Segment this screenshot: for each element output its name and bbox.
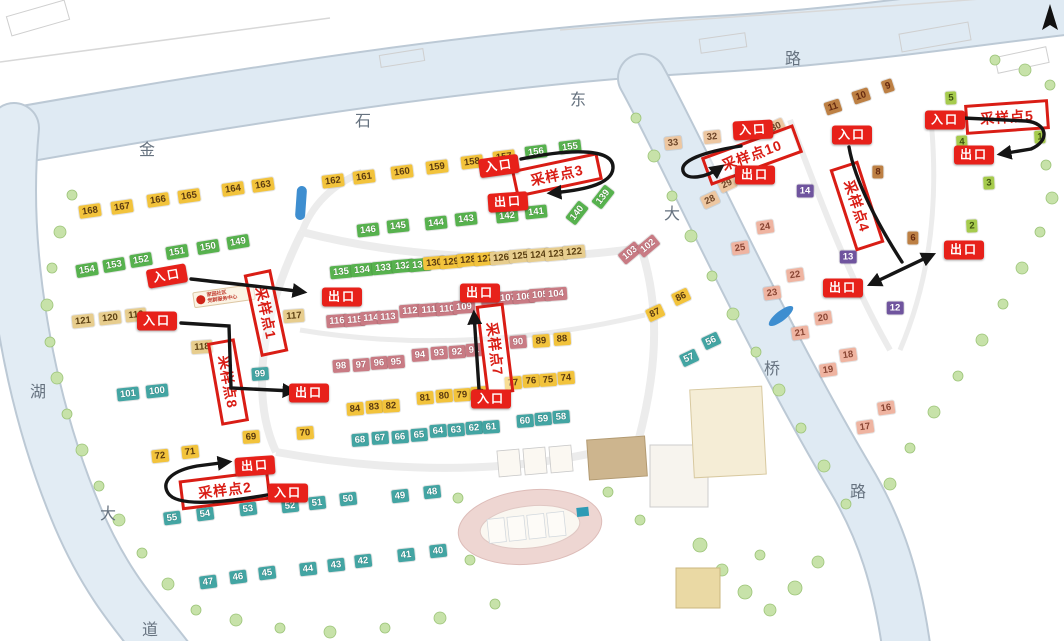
building-139: 139 xyxy=(591,184,615,209)
building-8: 8 xyxy=(872,166,883,179)
stadium xyxy=(455,483,606,572)
building-153: 153 xyxy=(102,257,126,273)
exit-marker: 出口 xyxy=(289,384,329,403)
road-name-char: 湖 xyxy=(30,378,46,402)
building-88: 88 xyxy=(553,332,570,346)
entrance-marker: 入口 xyxy=(733,119,774,140)
building-146: 146 xyxy=(356,222,379,237)
building-16: 16 xyxy=(877,400,895,415)
entrance-marker: 入口 xyxy=(832,126,872,145)
building-70: 70 xyxy=(296,426,313,440)
exit-marker: 出口 xyxy=(234,455,275,477)
exit-marker: 出口 xyxy=(735,166,775,185)
exit-marker: 出口 xyxy=(460,284,500,303)
building-11: 11 xyxy=(823,98,842,115)
building-121: 121 xyxy=(71,313,94,328)
building-81: 81 xyxy=(416,391,433,405)
pool xyxy=(766,303,796,329)
building-145: 145 xyxy=(386,218,409,233)
building-151: 151 xyxy=(165,244,189,260)
building-94: 94 xyxy=(411,348,428,362)
building-48: 48 xyxy=(423,485,441,500)
building-18: 18 xyxy=(839,347,857,362)
building-47: 47 xyxy=(199,575,217,590)
building-1: 1 xyxy=(1034,130,1046,144)
building-55: 55 xyxy=(163,511,181,526)
building-76: 76 xyxy=(522,374,539,388)
building-42: 42 xyxy=(354,554,372,569)
building-167: 167 xyxy=(110,199,133,215)
building-135: 135 xyxy=(330,265,353,280)
building-155: 155 xyxy=(558,139,581,155)
entrance-marker: 入口 xyxy=(137,312,177,331)
exit-marker: 出口 xyxy=(487,191,528,213)
building-113: 113 xyxy=(377,310,399,324)
building-117: 117 xyxy=(283,309,305,323)
building-63: 63 xyxy=(447,423,464,437)
building-67: 67 xyxy=(371,431,388,445)
building-161: 161 xyxy=(352,169,375,185)
building-74: 74 xyxy=(557,371,574,385)
road-name-char: 东 xyxy=(570,86,586,110)
building-101: 101 xyxy=(116,386,139,401)
sampling-point-box: 采样点8 xyxy=(207,338,249,426)
building-44: 44 xyxy=(299,562,317,577)
building-162: 162 xyxy=(321,173,344,189)
building-28: 28 xyxy=(700,191,721,210)
building-166: 166 xyxy=(146,192,169,208)
building-43: 43 xyxy=(327,558,345,573)
building-23: 23 xyxy=(763,285,781,300)
building-96: 96 xyxy=(370,356,387,370)
entrance-marker: 入口 xyxy=(925,111,965,130)
road-name-char: 金 xyxy=(139,136,155,160)
building-57: 57 xyxy=(679,349,700,368)
building-164: 164 xyxy=(221,181,244,197)
building-102: 102 xyxy=(635,234,660,258)
entrance-marker: 入口 xyxy=(146,263,189,289)
building-53: 53 xyxy=(239,502,257,517)
road-name-char: 道 xyxy=(142,616,158,640)
building-56: 56 xyxy=(701,332,722,351)
sampling-point-box: 采样点7 xyxy=(476,303,515,396)
exit-marker: 出口 xyxy=(944,241,984,260)
building-60: 60 xyxy=(516,414,533,428)
building-84: 84 xyxy=(346,402,363,416)
sampling-point-box: 采样点5 xyxy=(964,99,1050,135)
building-21: 21 xyxy=(791,325,809,340)
building-51: 51 xyxy=(308,496,326,511)
building-156: 156 xyxy=(524,144,547,160)
building-159: 159 xyxy=(425,159,448,175)
building-97: 97 xyxy=(352,358,369,372)
building-22: 22 xyxy=(786,267,804,282)
building-24: 24 xyxy=(756,219,774,234)
building-50: 50 xyxy=(339,492,357,507)
outer-road-line xyxy=(560,0,1064,30)
building-19: 19 xyxy=(819,362,837,377)
building-58: 58 xyxy=(552,410,569,424)
route-arrow xyxy=(871,255,932,284)
building-134: 134 xyxy=(351,263,374,278)
building-87: 87 xyxy=(645,304,666,323)
road-name-char: 桥 xyxy=(764,355,780,379)
entrance-marker: 入口 xyxy=(268,484,308,503)
building-65: 65 xyxy=(410,428,427,442)
party-logo-icon xyxy=(196,294,206,304)
building-140: 140 xyxy=(565,200,589,225)
building-160: 160 xyxy=(390,164,413,180)
exit-marker: 出口 xyxy=(954,146,994,165)
building-90: 90 xyxy=(509,335,526,349)
building-99: 99 xyxy=(251,367,268,381)
building-120: 120 xyxy=(98,310,121,325)
road-name-char: 大 xyxy=(100,500,116,524)
exit-marker: 出口 xyxy=(823,279,863,298)
road-name-char: 石 xyxy=(355,107,371,131)
building-32: 32 xyxy=(703,130,721,145)
building-2: 2 xyxy=(966,219,978,233)
building-163: 163 xyxy=(251,177,274,193)
building-98: 98 xyxy=(332,359,349,373)
building-75: 75 xyxy=(539,373,556,387)
building-165: 165 xyxy=(177,188,200,204)
building-64: 64 xyxy=(429,424,446,438)
sign-text: 家园社区党群服务中心 xyxy=(206,288,237,304)
building-143: 143 xyxy=(454,211,477,226)
river-top xyxy=(0,5,1064,140)
residential-sampling-site-map: 家园社区党群服务中心 金石东路湖大道大桥路1681671661651641631… xyxy=(0,0,1064,641)
building-152: 152 xyxy=(129,252,153,268)
building-40: 40 xyxy=(429,544,447,559)
building-95: 95 xyxy=(387,355,404,369)
outer-road-line xyxy=(0,18,330,62)
building-3: 3 xyxy=(983,176,995,190)
north-arrow-icon xyxy=(1042,4,1058,30)
offsite-building-outlines xyxy=(6,0,1049,73)
sampling-point-box: 采样点1 xyxy=(244,269,289,357)
building-68: 68 xyxy=(351,433,368,447)
building-33: 33 xyxy=(664,136,682,151)
building-6: 6 xyxy=(907,232,918,245)
road-name-char: 路 xyxy=(850,478,866,502)
school-buildings xyxy=(587,386,767,608)
building-61: 61 xyxy=(482,420,499,434)
canal-marker xyxy=(295,186,307,221)
road-name-char: 大 xyxy=(664,200,680,224)
building-100: 100 xyxy=(145,383,168,398)
building-80: 80 xyxy=(435,389,452,403)
building-168: 168 xyxy=(78,203,101,219)
building-5: 5 xyxy=(945,91,957,105)
building-20: 20 xyxy=(814,310,832,325)
building-41: 41 xyxy=(397,548,415,563)
building-69: 69 xyxy=(242,430,259,444)
road-name-char: 路 xyxy=(785,45,801,69)
building-59: 59 xyxy=(534,412,551,426)
building-89: 89 xyxy=(532,334,549,348)
building-72: 72 xyxy=(151,449,169,464)
building-150: 150 xyxy=(196,239,220,255)
building-82: 82 xyxy=(382,399,399,413)
building-66: 66 xyxy=(391,430,408,444)
building-104: 104 xyxy=(545,287,568,301)
building-12: 12 xyxy=(887,302,904,315)
building-10: 10 xyxy=(851,87,871,104)
exit-marker: 出口 xyxy=(322,288,362,307)
sampling-point-box: 采样点2 xyxy=(179,470,272,511)
building-144: 144 xyxy=(424,215,447,230)
building-154: 154 xyxy=(75,262,99,278)
building-62: 62 xyxy=(465,421,482,435)
building-86: 86 xyxy=(671,288,692,307)
building-49: 49 xyxy=(391,489,409,504)
building-92: 92 xyxy=(448,345,465,359)
building-17: 17 xyxy=(856,419,874,434)
building-54: 54 xyxy=(196,507,214,522)
building-25: 25 xyxy=(731,240,749,255)
entrance-marker: 入口 xyxy=(471,390,511,409)
building-93: 93 xyxy=(430,346,447,360)
building-46: 46 xyxy=(229,570,247,585)
building-9: 9 xyxy=(881,78,896,94)
building-71: 71 xyxy=(181,445,199,460)
building-79: 79 xyxy=(453,388,470,402)
basketball-courts xyxy=(497,445,573,477)
building-149: 149 xyxy=(226,234,250,250)
building-83: 83 xyxy=(365,400,382,414)
building-45: 45 xyxy=(258,566,276,581)
building-14: 14 xyxy=(797,185,814,198)
building-13: 13 xyxy=(840,251,857,264)
building-122: 122 xyxy=(563,245,586,260)
